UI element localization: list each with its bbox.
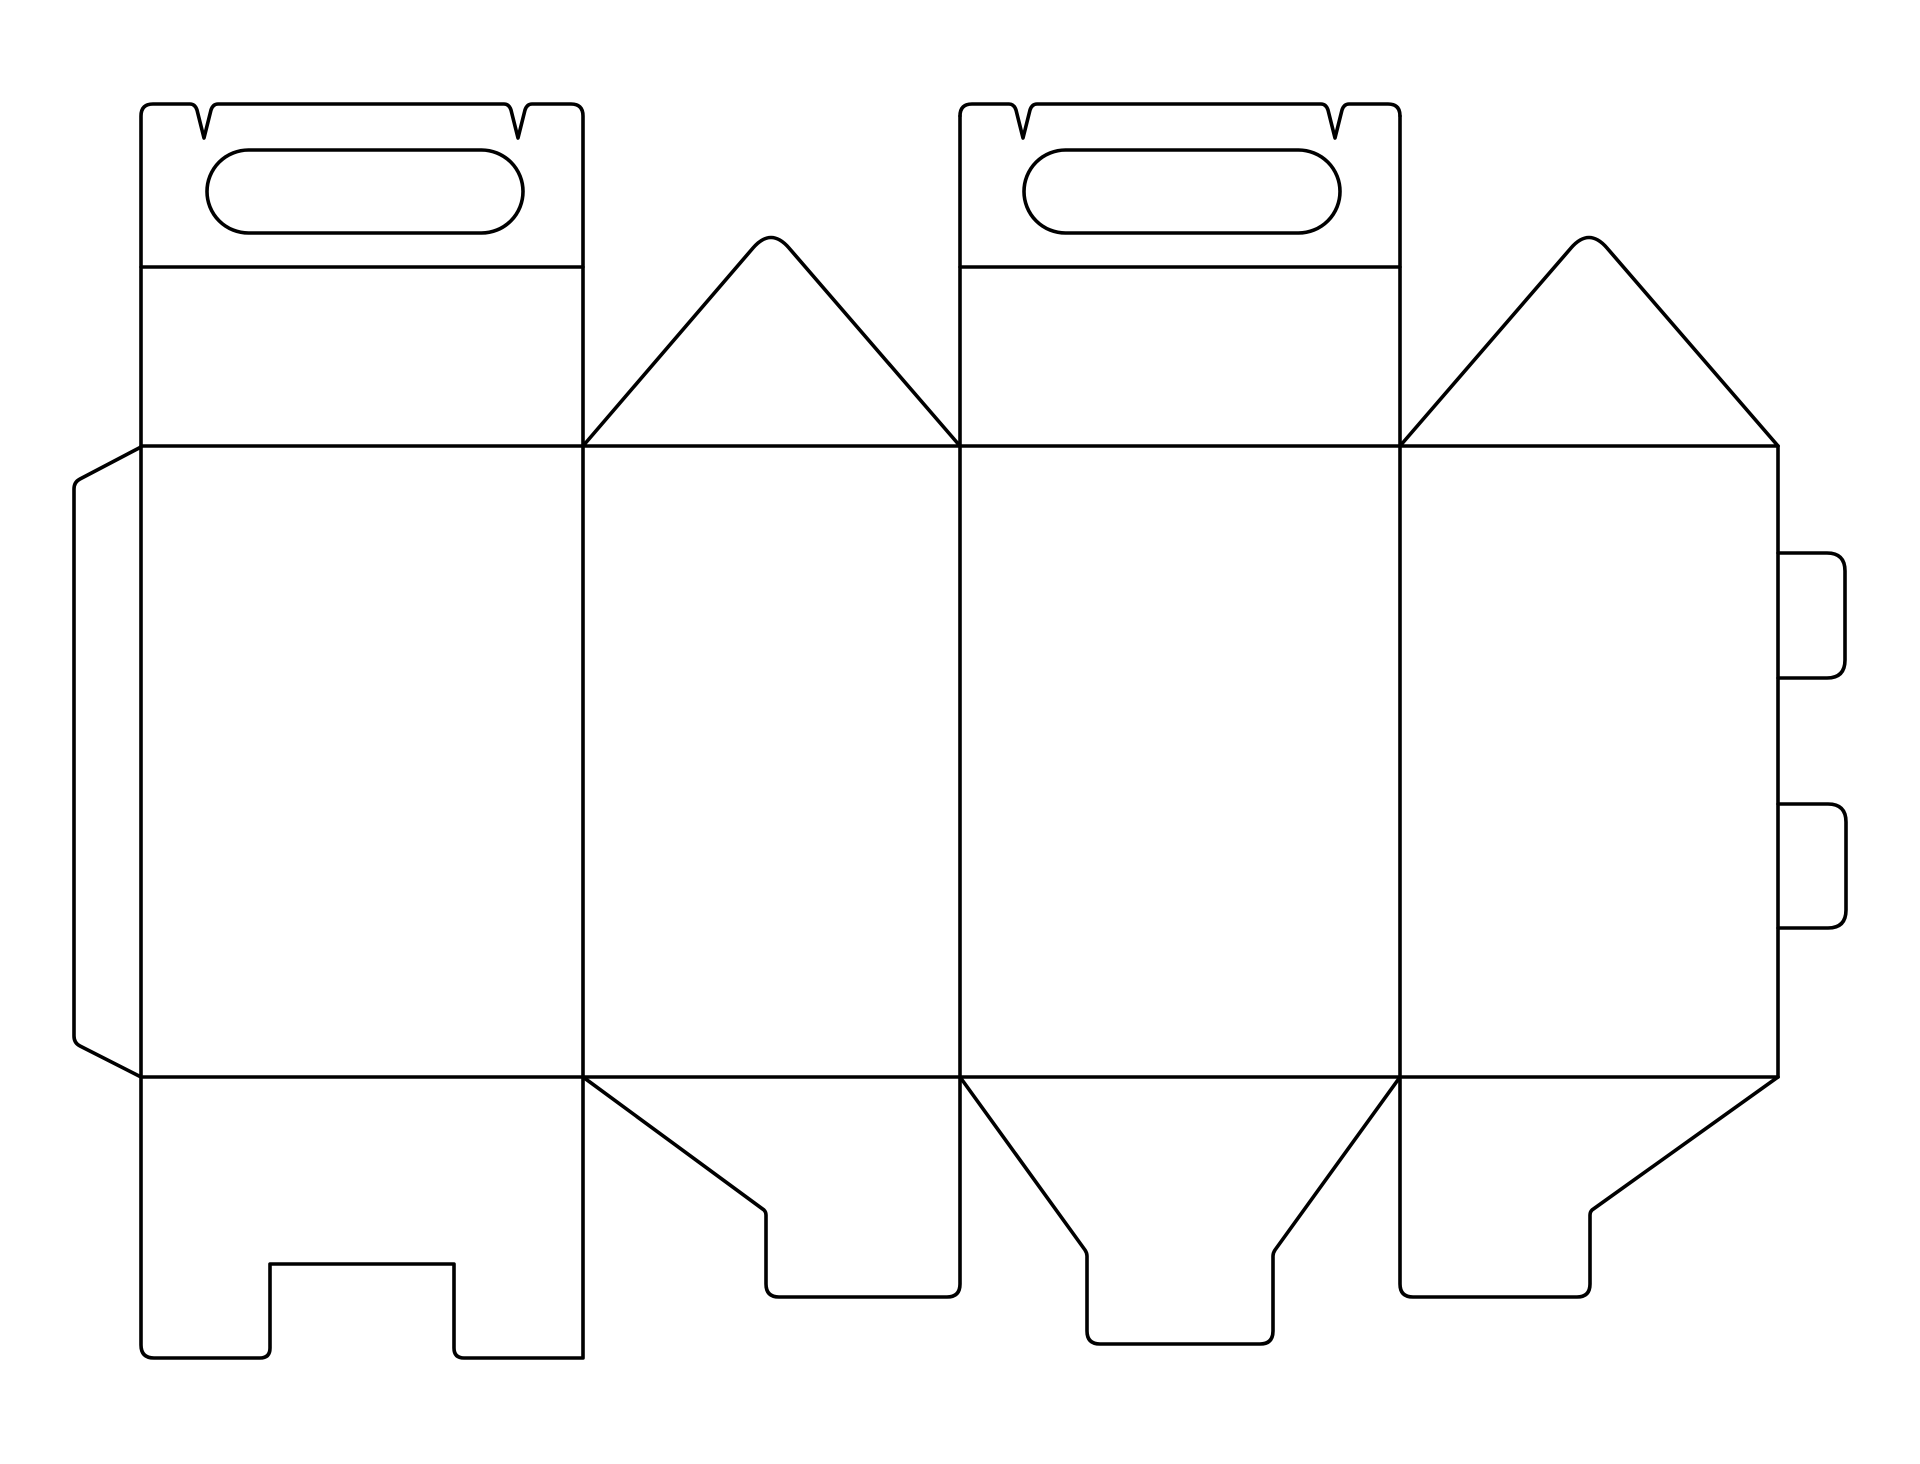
side-tab-top <box>1778 553 1845 678</box>
glue-flap-left <box>74 447 141 1077</box>
panel3-handle-hole <box>1024 150 1340 233</box>
dieline-canvas <box>0 0 1920 1464</box>
panel1-handle-hole <box>207 150 523 233</box>
panel4-gable-triangle <box>1400 238 1778 447</box>
side-tab-bottom <box>1778 804 1846 928</box>
panel3-bottom-flap-funnel <box>960 1077 1400 1344</box>
panel1-outline-with-handle-top-and-notched-bottom-flap <box>141 104 583 1358</box>
panel3-handle-top-edge <box>960 104 1400 138</box>
panel2-bottom-flap <box>583 1077 960 1297</box>
dieline-diagram <box>0 0 1920 1464</box>
panel4-bottom-flap <box>1400 1077 1778 1297</box>
panel2-gable-triangle <box>583 238 960 447</box>
